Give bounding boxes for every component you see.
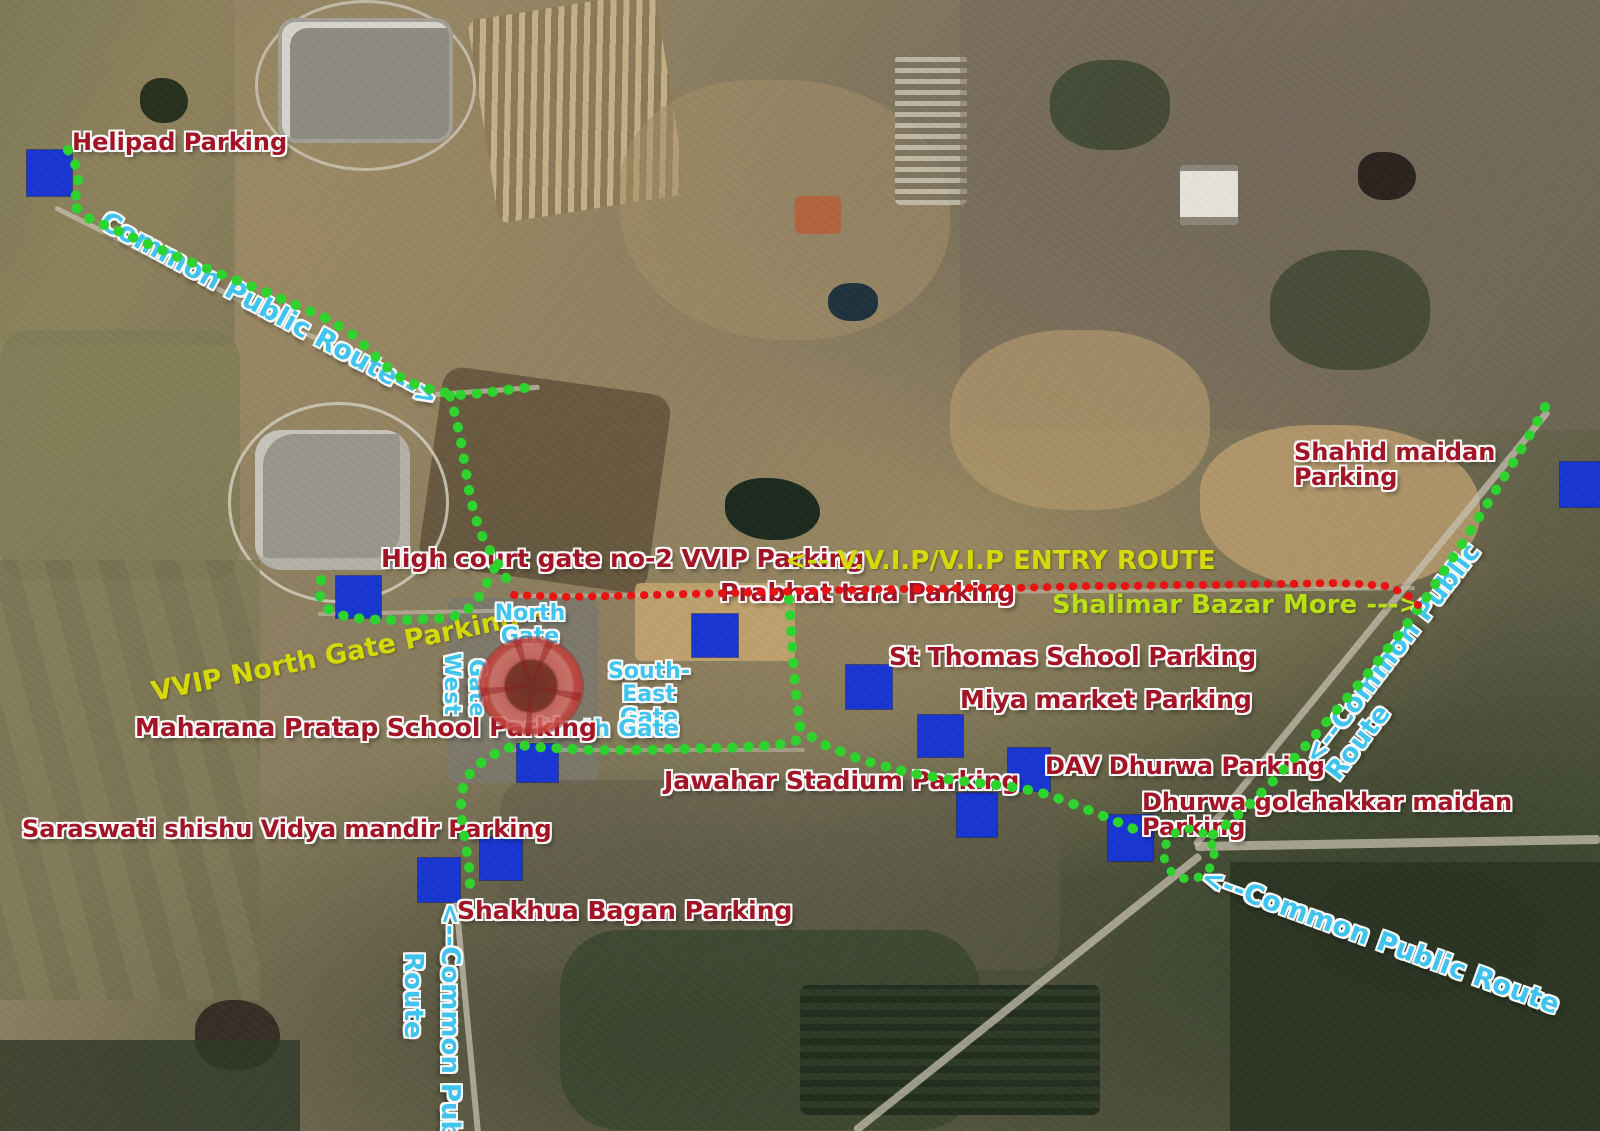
vvip-entry-route <box>514 583 1418 605</box>
common-public-route-junction-south-branch <box>450 396 512 591</box>
routes-overlay <box>0 0 1600 1131</box>
common-public-route-golchakkar-circle <box>1164 829 1214 879</box>
common-public-route-right-diagonal <box>1206 407 1545 840</box>
satellite-map: Helipad ParkingCommon Public Route-->Sha… <box>0 0 1600 1131</box>
common-public-route-south-stadium-loop <box>461 599 801 891</box>
common-public-route-west-gate-loop <box>320 557 500 620</box>
common-public-route-helipad-to-junction <box>68 150 536 395</box>
common-public-route-east-to-golchakkar <box>800 726 1144 833</box>
